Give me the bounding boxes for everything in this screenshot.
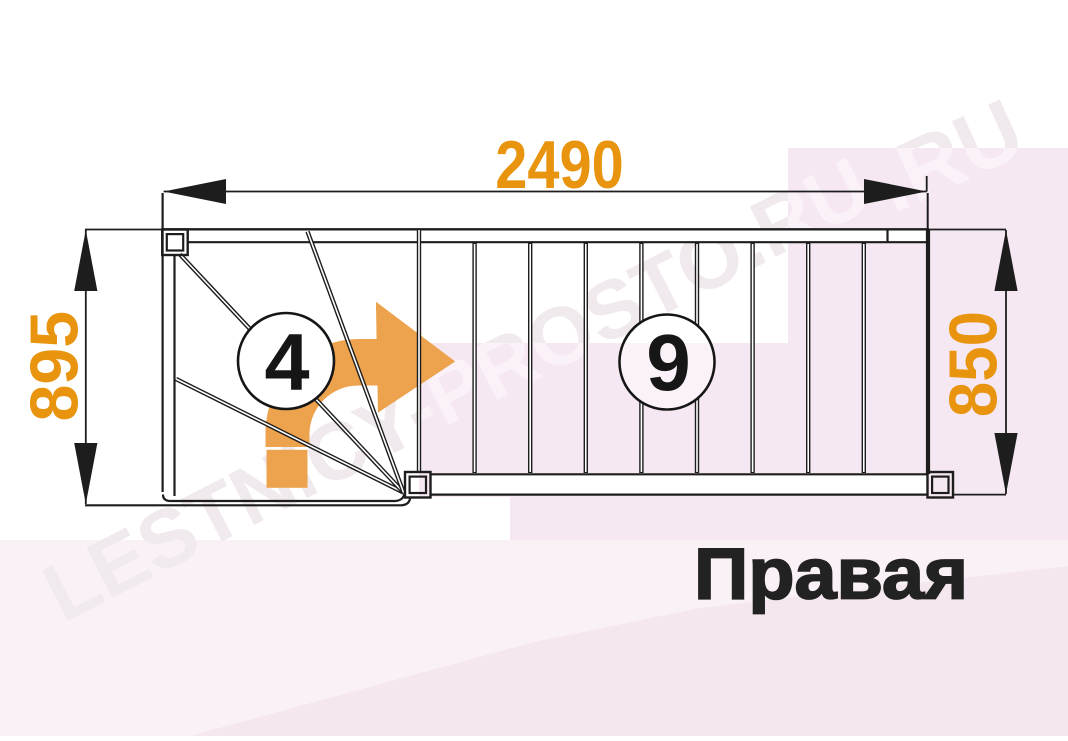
svg-text:9: 9	[646, 318, 691, 407]
svg-text:Правая: Правая	[694, 533, 968, 614]
svg-text:850: 850	[934, 311, 1010, 417]
svg-text:895: 895	[17, 311, 93, 422]
svg-text:4: 4	[264, 318, 309, 408]
svg-text:2490: 2490	[495, 128, 623, 203]
